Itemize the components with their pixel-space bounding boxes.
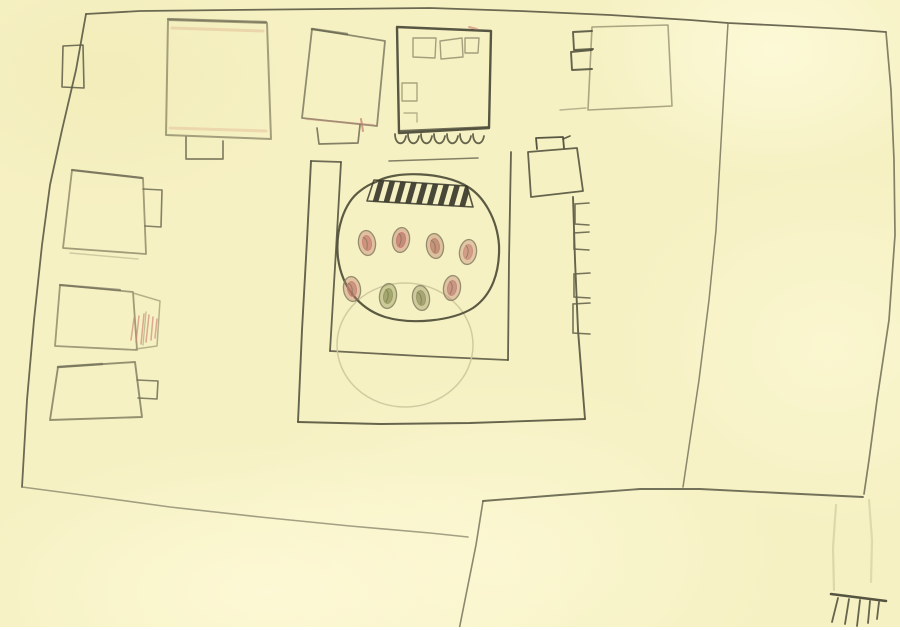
building-outline bbox=[397, 27, 491, 133]
chimney-tick bbox=[563, 136, 570, 139]
wall-mark bbox=[404, 113, 417, 122]
boundary-right-edge bbox=[864, 32, 895, 494]
roof-smudge bbox=[312, 29, 347, 34]
wall-notch bbox=[575, 203, 589, 225]
peach-shading bbox=[306, 119, 374, 125]
building-outline bbox=[166, 20, 271, 139]
roof-edge bbox=[58, 364, 102, 367]
pale-path-line bbox=[833, 505, 836, 590]
top-left-building bbox=[166, 19, 271, 159]
tree-dot bbox=[425, 232, 445, 259]
courtyard-inner-left-wall bbox=[330, 162, 341, 351]
stair-tooth bbox=[857, 600, 860, 626]
building-porch bbox=[317, 125, 360, 144]
boundary-step-vertical bbox=[459, 501, 483, 630]
inner-road-line bbox=[683, 23, 728, 487]
tree-dot bbox=[357, 229, 377, 256]
stairs-teeth bbox=[832, 598, 879, 626]
roof-edge bbox=[72, 170, 142, 178]
peach-shading bbox=[170, 128, 266, 131]
chimney-box bbox=[536, 137, 564, 149]
stair-tooth bbox=[877, 602, 879, 619]
left-wall-cap bbox=[311, 161, 341, 162]
building-outline bbox=[302, 29, 385, 126]
left-building-lower bbox=[50, 362, 158, 420]
pale-path-line bbox=[869, 500, 872, 582]
map-drawing bbox=[0, 0, 900, 630]
wall-notch bbox=[573, 303, 590, 334]
garden-bed bbox=[337, 172, 499, 321]
building-outline bbox=[50, 362, 142, 420]
top-middle-building bbox=[302, 29, 385, 144]
building-roof-edge bbox=[168, 19, 266, 22]
ground-line bbox=[560, 108, 586, 110]
top-center-dark-building bbox=[389, 27, 491, 161]
stairs-bar bbox=[831, 594, 886, 601]
door bbox=[402, 83, 417, 101]
building-porch bbox=[186, 137, 223, 159]
boundary-step-horizontal bbox=[483, 489, 863, 501]
building-outline bbox=[55, 285, 137, 350]
ground-line bbox=[70, 253, 138, 259]
tree-dots-group bbox=[342, 226, 478, 311]
stair-tooth bbox=[868, 601, 870, 623]
annex-box bbox=[571, 50, 592, 70]
roof-edge bbox=[60, 285, 120, 290]
window bbox=[413, 38, 436, 58]
tree-dot bbox=[391, 226, 411, 253]
courtyard-corner-building bbox=[528, 136, 583, 197]
left-building-upper bbox=[63, 170, 162, 259]
bottom-right-path bbox=[831, 500, 886, 626]
tree-dot bbox=[411, 284, 431, 311]
red-tick bbox=[469, 27, 477, 29]
tree-dot bbox=[442, 274, 462, 301]
courtyard-inner-right-wall bbox=[508, 152, 511, 360]
window bbox=[440, 38, 463, 59]
arcade-scallops bbox=[395, 134, 484, 143]
peach-shading bbox=[172, 28, 263, 31]
red-tick bbox=[361, 119, 363, 131]
building-outline bbox=[528, 148, 583, 197]
forecourt-line bbox=[389, 158, 478, 161]
boundary-left-edge bbox=[22, 14, 86, 487]
faint-pond-circle bbox=[337, 283, 473, 407]
top-right-building bbox=[560, 25, 672, 110]
courtyard-outer-right-wall bbox=[573, 197, 585, 419]
tree-dot bbox=[458, 238, 478, 265]
stair-tooth bbox=[832, 598, 838, 622]
building-outline bbox=[63, 170, 146, 254]
courtyard-outer-left-wall bbox=[298, 161, 311, 422]
boundary-bottom-edge bbox=[22, 487, 468, 537]
courtyard-bottom-wall bbox=[298, 419, 585, 424]
hand-drawn-map bbox=[0, 0, 900, 630]
wall-notch bbox=[574, 232, 589, 250]
left-building-middle bbox=[55, 285, 160, 350]
stair-tooth bbox=[845, 599, 849, 624]
annex bbox=[143, 189, 162, 227]
courtyard-inner-bottom-wall bbox=[330, 351, 508, 360]
annex-box bbox=[573, 31, 593, 50]
window bbox=[465, 38, 479, 53]
building-outline bbox=[588, 25, 672, 110]
